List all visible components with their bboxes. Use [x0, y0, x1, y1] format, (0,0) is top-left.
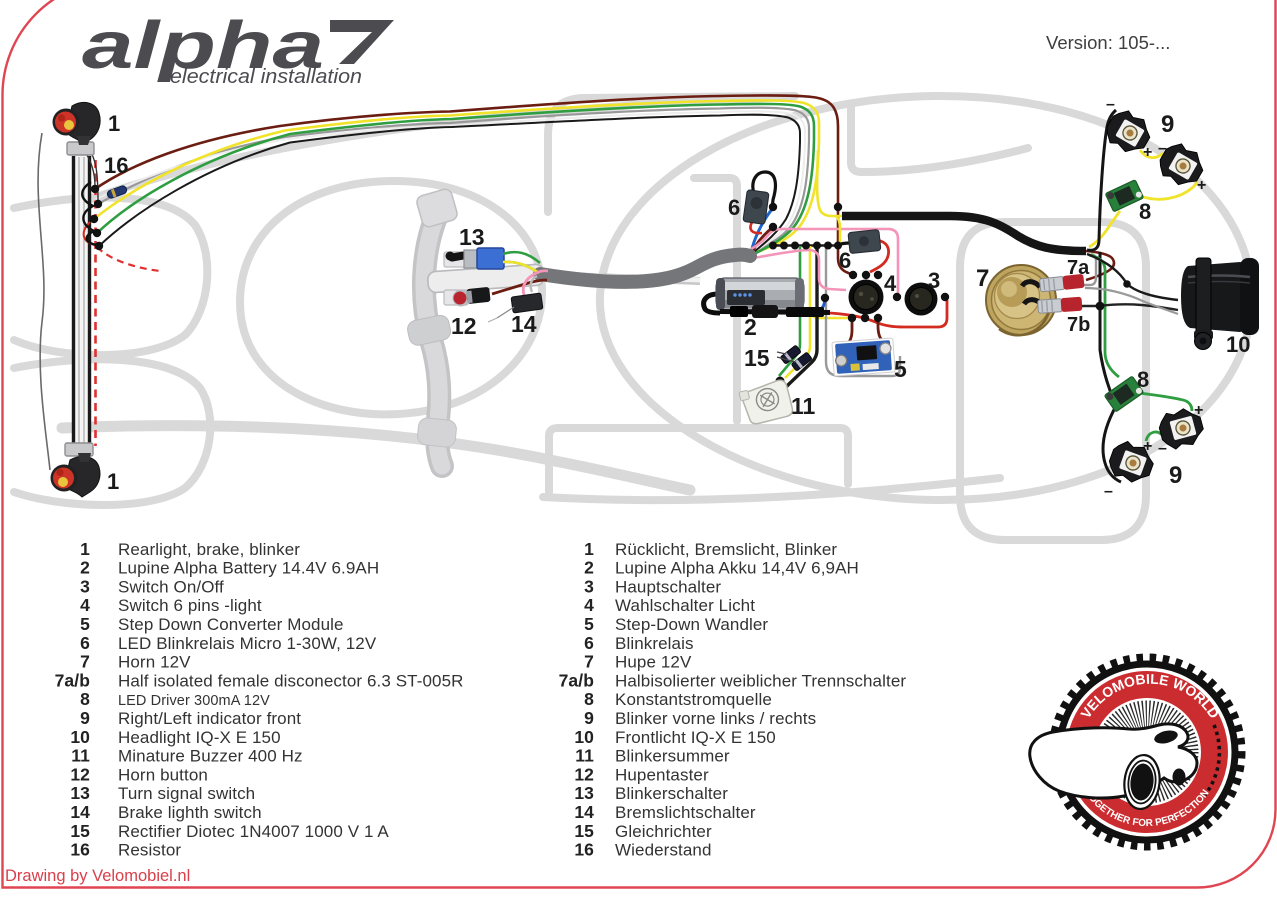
svg-text:13: 13 — [70, 783, 90, 803]
svg-text:1: 1 — [80, 539, 90, 559]
svg-text:Halbisolierter weiblicher Tren: Halbisolierter weiblicher Trennschalter — [615, 671, 906, 690]
svg-text:Wahlschalter Licht: Wahlschalter Licht — [615, 596, 755, 615]
svg-text:8: 8 — [1137, 367, 1149, 392]
svg-text:11: 11 — [791, 393, 816, 419]
svg-text:Minature Buzzer 400 Hz: Minature Buzzer 400 Hz — [118, 747, 303, 766]
svg-text:7: 7 — [584, 652, 594, 672]
svg-text:12: 12 — [451, 313, 477, 339]
svg-text:Gleichrichter: Gleichrichter — [615, 822, 712, 841]
svg-text:12: 12 — [574, 764, 594, 784]
svg-text:Horn button: Horn button — [118, 765, 208, 784]
svg-text:15: 15 — [744, 345, 770, 371]
svg-text:–: – — [1158, 440, 1167, 457]
svg-text:LED Driver 300mA 12V: LED Driver 300mA 12V — [118, 693, 270, 709]
svg-text:10: 10 — [574, 727, 594, 747]
svg-text:Step-Down Wandler: Step-Down Wandler — [615, 615, 768, 634]
svg-text:13: 13 — [459, 224, 485, 250]
svg-text:Resistor: Resistor — [118, 841, 181, 860]
svg-text:LED Blinkrelais Micro 1-30W, 1: LED Blinkrelais Micro 1-30W, 12V — [118, 634, 377, 653]
svg-text:4: 4 — [80, 595, 90, 615]
svg-text:3: 3 — [80, 576, 90, 596]
svg-text:1: 1 — [584, 539, 594, 559]
svg-text:7a/b: 7a/b — [559, 670, 594, 690]
svg-text:Switch On/Off: Switch On/Off — [118, 577, 224, 596]
svg-text:10: 10 — [1226, 332, 1250, 357]
svg-text:Half isolated female disconect: Half isolated female disconector 6.3 ST-… — [118, 671, 464, 690]
svg-text:Lupine Alpha Battery 14.4V 6.9: Lupine Alpha Battery 14.4V 6.9AH — [118, 559, 379, 578]
svg-text:Blinkersummer: Blinkersummer — [615, 747, 730, 766]
svg-text:7b: 7b — [1067, 314, 1090, 336]
svg-text:Hupentaster: Hupentaster — [615, 765, 709, 784]
svg-text:+: + — [1143, 144, 1152, 161]
svg-text:6: 6 — [728, 195, 740, 220]
svg-text:2: 2 — [744, 314, 757, 340]
svg-text:Blinkrelais: Blinkrelais — [615, 634, 694, 653]
svg-text:5: 5 — [584, 614, 594, 634]
svg-text:14: 14 — [574, 802, 594, 822]
svg-text:14: 14 — [511, 311, 537, 337]
svg-text:9: 9 — [1169, 462, 1182, 489]
svg-text:8: 8 — [80, 689, 90, 709]
svg-text:–: – — [1106, 96, 1115, 113]
svg-text:15: 15 — [70, 821, 90, 841]
svg-text:Turn signal switch: Turn signal switch — [118, 784, 255, 803]
svg-text:Hupe 12V: Hupe 12V — [615, 653, 692, 672]
svg-text:Horn 12V: Horn 12V — [118, 653, 191, 672]
svg-text:4: 4 — [584, 595, 594, 615]
svg-text:16: 16 — [574, 840, 594, 860]
svg-text:13: 13 — [574, 783, 594, 803]
svg-text:15: 15 — [574, 821, 594, 841]
svg-text:Bremslichtschalter: Bremslichtschalter — [615, 803, 756, 822]
svg-text:14: 14 — [70, 802, 90, 822]
svg-text:3: 3 — [584, 576, 594, 596]
svg-text:–: – — [1104, 483, 1113, 500]
svg-text:6: 6 — [584, 633, 594, 653]
svg-text:Brake lighth switch: Brake lighth switch — [118, 803, 262, 822]
svg-text:11: 11 — [575, 746, 594, 766]
svg-text:8: 8 — [584, 689, 594, 709]
svg-text:9: 9 — [584, 708, 594, 728]
svg-text:4: 4 — [884, 271, 897, 296]
svg-text:Frontlicht IQ-X E 150: Frontlicht IQ-X E 150 — [615, 728, 776, 747]
svg-text:6: 6 — [839, 248, 851, 273]
svg-text:9: 9 — [80, 708, 90, 728]
svg-text:9: 9 — [1161, 111, 1174, 138]
svg-text:Rectifier Diotec 1N4007 1000 V: Rectifier Diotec 1N4007 1000 V 1 A — [118, 822, 389, 841]
svg-text:Drawing by Velomobiel.nl: Drawing by Velomobiel.nl — [5, 867, 190, 885]
svg-text:16: 16 — [104, 153, 128, 178]
svg-text:11: 11 — [71, 746, 90, 766]
svg-text:Konstantstromquelle: Konstantstromquelle — [615, 690, 772, 709]
svg-text:Lupine Alpha Akku 14,4V 6,9AH: Lupine Alpha Akku 14,4V 6,9AH — [615, 559, 859, 578]
svg-text:5: 5 — [894, 356, 907, 382]
svg-text:Hauptschalter: Hauptschalter — [615, 577, 721, 596]
svg-text:16: 16 — [70, 840, 90, 860]
svg-text:+: + — [1194, 402, 1203, 419]
svg-text:8: 8 — [1139, 199, 1151, 224]
svg-text:Headlight IQ-X E 150: Headlight IQ-X E 150 — [118, 728, 281, 747]
svg-text:2: 2 — [80, 558, 90, 578]
svg-text:7: 7 — [976, 265, 989, 292]
svg-text:Version: 105-...: Version: 105-... — [1046, 32, 1170, 53]
svg-text:Wiederstand: Wiederstand — [615, 841, 712, 860]
svg-text:Rücklicht, Bremslicht, Blinker: Rücklicht, Bremslicht, Blinker — [615, 540, 837, 559]
svg-text:7a/b: 7a/b — [55, 670, 90, 690]
svg-text:12: 12 — [70, 764, 90, 784]
svg-text:1: 1 — [108, 111, 120, 136]
svg-text:Right/Left indicator front: Right/Left indicator front — [118, 709, 301, 728]
svg-text:Blinker vorne links / rechts: Blinker vorne links / rechts — [615, 709, 816, 728]
svg-text:6: 6 — [80, 633, 90, 653]
svg-text:Switch 6 pins -light: Switch 6 pins -light — [118, 596, 262, 615]
svg-text:Step Down Converter Module: Step Down Converter Module — [118, 615, 344, 634]
svg-text:1: 1 — [107, 469, 119, 494]
svg-text:electrical installation: electrical installation — [170, 66, 362, 88]
svg-text:Rearlight, brake, blinker: Rearlight, brake, blinker — [118, 540, 300, 559]
svg-text:5: 5 — [80, 614, 90, 634]
svg-text:7a: 7a — [1067, 257, 1090, 279]
svg-text:3: 3 — [928, 268, 940, 293]
svg-text:–: – — [1158, 140, 1167, 157]
svg-text:+: + — [1197, 177, 1206, 194]
svg-text:10: 10 — [70, 727, 90, 747]
svg-text:7: 7 — [80, 652, 90, 672]
svg-text:Blinkerschalter: Blinkerschalter — [615, 784, 728, 803]
svg-text:2: 2 — [584, 558, 594, 578]
svg-text:+: + — [1143, 438, 1152, 455]
